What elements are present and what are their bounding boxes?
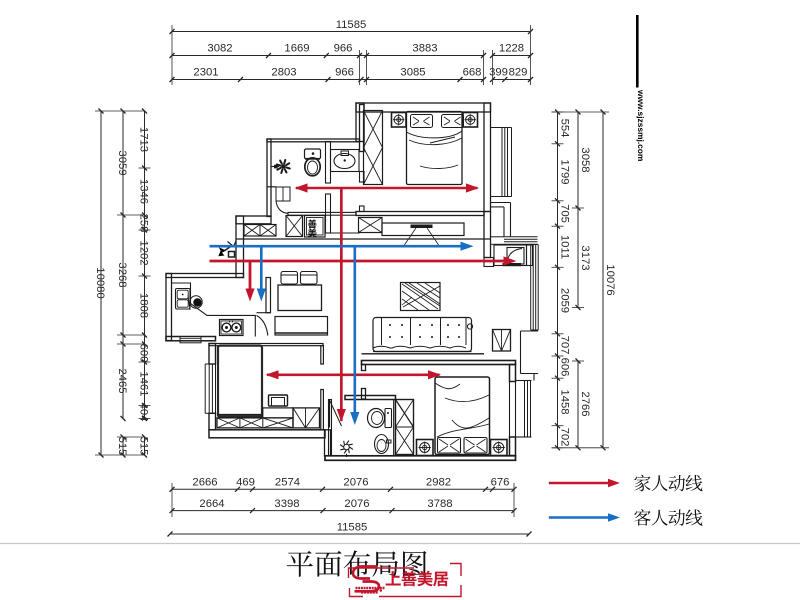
svg-text:2766: 2766 bbox=[579, 391, 591, 416]
svg-text:966: 966 bbox=[335, 67, 354, 79]
svg-text:606: 606 bbox=[559, 358, 571, 377]
svg-text:1011: 1011 bbox=[559, 235, 571, 259]
svg-text:2666: 2666 bbox=[192, 477, 217, 489]
svg-text:11585: 11585 bbox=[336, 19, 367, 31]
svg-text:www.sjzssmj.com: www.sjzssmj.com bbox=[636, 89, 646, 161]
svg-text:404: 404 bbox=[138, 403, 150, 422]
svg-text:1799: 1799 bbox=[559, 159, 571, 184]
svg-text:3398: 3398 bbox=[274, 498, 299, 510]
svg-text:600: 600 bbox=[138, 344, 150, 363]
svg-text:399: 399 bbox=[489, 67, 508, 79]
svg-text:2982: 2982 bbox=[426, 477, 451, 489]
svg-text:2301: 2301 bbox=[193, 67, 218, 79]
svg-text:515: 515 bbox=[138, 437, 150, 456]
svg-text:2465: 2465 bbox=[116, 368, 128, 393]
svg-text:3082: 3082 bbox=[207, 43, 232, 55]
svg-text:1202: 1202 bbox=[138, 240, 150, 265]
svg-text:829: 829 bbox=[509, 67, 528, 79]
svg-text:10076: 10076 bbox=[604, 264, 616, 295]
svg-text:3268: 3268 bbox=[116, 262, 128, 287]
svg-text:515: 515 bbox=[116, 437, 128, 456]
svg-text:3058: 3058 bbox=[579, 147, 591, 172]
svg-text:1346: 1346 bbox=[138, 179, 150, 204]
svg-text:668: 668 bbox=[463, 67, 482, 79]
svg-text:2076: 2076 bbox=[343, 477, 368, 489]
svg-text:3085: 3085 bbox=[400, 67, 425, 79]
svg-text:2076: 2076 bbox=[344, 498, 369, 510]
svg-text:3173: 3173 bbox=[579, 245, 591, 270]
svg-text:11585: 11585 bbox=[337, 522, 368, 534]
svg-text:3059: 3059 bbox=[116, 150, 128, 175]
svg-text:1669: 1669 bbox=[284, 43, 309, 55]
svg-text:676: 676 bbox=[491, 477, 510, 489]
svg-text:966: 966 bbox=[334, 43, 353, 55]
svg-text:554: 554 bbox=[559, 119, 571, 138]
svg-text:2803: 2803 bbox=[271, 67, 296, 79]
svg-text:10080: 10080 bbox=[94, 267, 106, 298]
svg-text:705: 705 bbox=[559, 204, 571, 223]
svg-text:1461: 1461 bbox=[138, 371, 150, 396]
svg-text:2059: 2059 bbox=[559, 288, 571, 313]
svg-text:1808: 1808 bbox=[138, 293, 150, 318]
svg-text:2574: 2574 bbox=[275, 477, 300, 489]
svg-text:258: 258 bbox=[138, 214, 150, 233]
svg-text:3883: 3883 bbox=[412, 43, 437, 55]
svg-text:702: 702 bbox=[559, 428, 571, 447]
svg-text:469: 469 bbox=[236, 477, 255, 489]
svg-text:707: 707 bbox=[559, 336, 571, 355]
svg-text:1228: 1228 bbox=[499, 43, 524, 55]
svg-text:3788: 3788 bbox=[427, 498, 452, 510]
svg-text:2664: 2664 bbox=[199, 498, 224, 510]
svg-text:1713: 1713 bbox=[138, 127, 150, 152]
svg-text:1458: 1458 bbox=[559, 389, 571, 414]
